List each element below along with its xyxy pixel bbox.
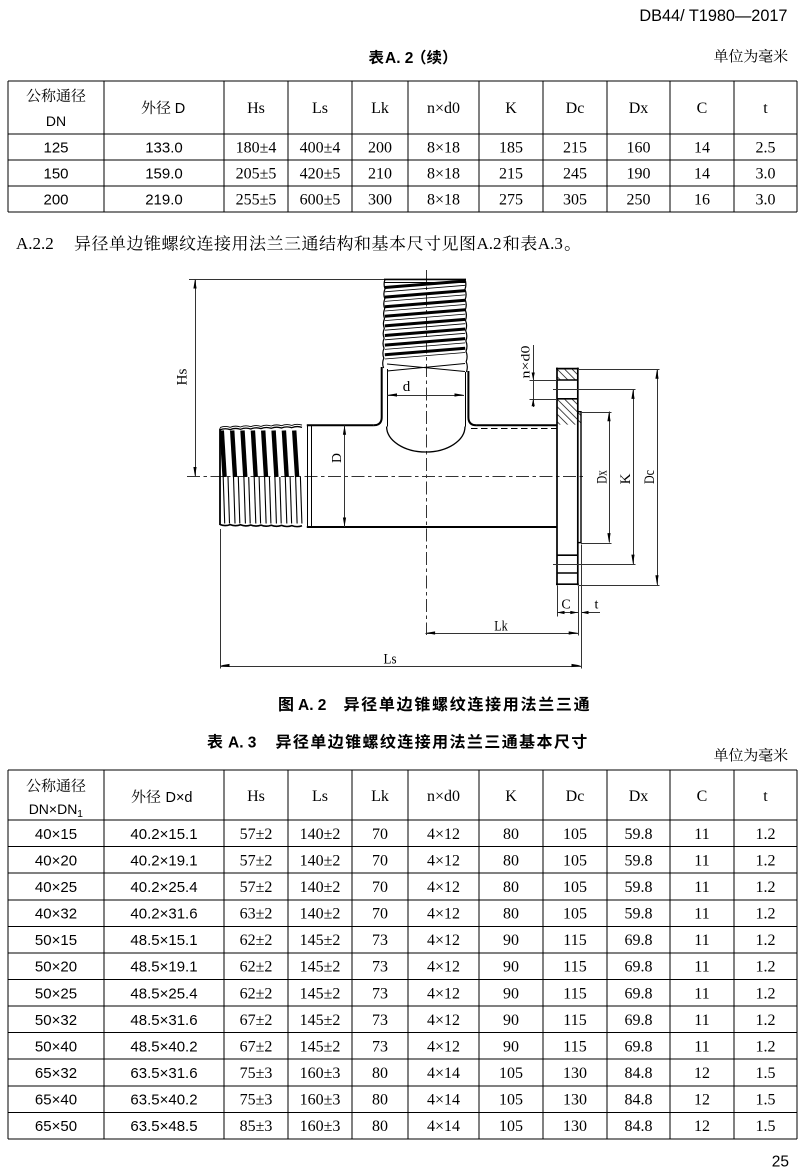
svg-text:50×40: 50×40 (35, 1038, 77, 1055)
svg-text:80: 80 (372, 1092, 388, 1109)
svg-text:65×50: 65×50 (35, 1118, 77, 1135)
svg-text:69.8: 69.8 (625, 985, 653, 1002)
svg-text:90: 90 (503, 959, 519, 976)
svg-text:11: 11 (694, 985, 709, 1002)
svg-text:DB44/ T1980—2017: DB44/ T1980—2017 (639, 7, 787, 25)
svg-text:210: 210 (368, 166, 392, 183)
svg-text:11: 11 (694, 852, 709, 869)
svg-text:130: 130 (563, 1092, 587, 1109)
svg-text:160±3: 160±3 (300, 1065, 341, 1082)
svg-text:59.8: 59.8 (625, 826, 653, 843)
svg-text:130: 130 (563, 1118, 587, 1135)
svg-text:11: 11 (694, 959, 709, 976)
svg-text:85±3: 85±3 (240, 1118, 273, 1135)
svg-text:12: 12 (694, 1118, 710, 1135)
svg-text:Dc: Dc (566, 100, 585, 117)
svg-text:14: 14 (694, 140, 710, 157)
svg-text:160±3: 160±3 (300, 1092, 341, 1109)
svg-text:140±2: 140±2 (300, 879, 341, 896)
svg-text:40.2×25.4: 40.2×25.4 (130, 879, 197, 896)
svg-text:t: t (763, 788, 768, 805)
svg-text:140±2: 140±2 (300, 826, 341, 843)
svg-text:160±3: 160±3 (300, 1118, 341, 1135)
svg-text:115: 115 (563, 1012, 586, 1029)
svg-text:A.2: A.2 (477, 234, 502, 253)
svg-text:48.5×19.1: 48.5×19.1 (130, 959, 197, 976)
svg-text:Hs: Hs (247, 788, 265, 805)
svg-text:1.2: 1.2 (756, 932, 776, 949)
svg-text:A. 2: A. 2 (385, 50, 413, 67)
svg-text:16: 16 (694, 192, 710, 209)
svg-text:Hs: Hs (247, 100, 265, 117)
svg-text:A.3: A.3 (538, 234, 563, 253)
svg-text:205±5: 205±5 (236, 166, 277, 183)
svg-text:200: 200 (368, 140, 392, 157)
svg-text:59.8: 59.8 (625, 879, 653, 896)
svg-text:75±3: 75±3 (240, 1092, 273, 1109)
svg-text:D×d: D×d (165, 790, 192, 806)
svg-text:63.5×31.6: 63.5×31.6 (130, 1065, 197, 1082)
svg-text:Dc: Dc (566, 788, 585, 805)
svg-text:11: 11 (694, 906, 709, 923)
svg-text:Dc: Dc (642, 470, 658, 484)
svg-text:40×20: 40×20 (35, 852, 77, 869)
svg-text:4×14: 4×14 (427, 1092, 460, 1109)
svg-text:115: 115 (563, 932, 586, 949)
svg-text:145±2: 145±2 (300, 1012, 341, 1029)
svg-text:420±5: 420±5 (300, 166, 341, 183)
svg-text:75±3: 75±3 (240, 1065, 273, 1082)
svg-text:DN×DN: DN×DN (29, 801, 78, 817)
svg-text:130: 130 (563, 1065, 587, 1082)
svg-text:1.2: 1.2 (756, 959, 776, 976)
svg-text:70: 70 (372, 906, 388, 923)
svg-text:1.2: 1.2 (756, 826, 776, 843)
svg-text:140±2: 140±2 (300, 906, 341, 923)
svg-text:1.2: 1.2 (756, 985, 776, 1002)
svg-text:40×15: 40×15 (35, 826, 77, 843)
svg-text:48.5×15.1: 48.5×15.1 (130, 932, 197, 949)
svg-text:40×25: 40×25 (35, 879, 77, 896)
svg-text:11: 11 (694, 932, 709, 949)
svg-text:73: 73 (372, 959, 388, 976)
svg-text:67±2: 67±2 (240, 1038, 273, 1055)
svg-text:275: 275 (499, 192, 523, 209)
svg-text:62±2: 62±2 (240, 932, 273, 949)
svg-text:70: 70 (372, 852, 388, 869)
svg-text:Lk: Lk (494, 619, 508, 635)
svg-text:105: 105 (563, 879, 587, 896)
svg-text:3.0: 3.0 (756, 166, 776, 183)
svg-text:1: 1 (77, 808, 83, 820)
svg-text:80: 80 (372, 1118, 388, 1135)
svg-text:3.0: 3.0 (756, 192, 776, 209)
svg-text:215: 215 (499, 166, 523, 183)
svg-text:140±2: 140±2 (300, 852, 341, 869)
svg-text:4×14: 4×14 (427, 1065, 460, 1082)
svg-text:63±2: 63±2 (240, 906, 273, 923)
svg-text:C: C (697, 100, 708, 117)
svg-text:1.2: 1.2 (756, 852, 776, 869)
svg-text:145±2: 145±2 (300, 1038, 341, 1055)
svg-text:65×32: 65×32 (35, 1065, 77, 1082)
svg-text:115: 115 (563, 1038, 586, 1055)
svg-text:4×14: 4×14 (427, 1118, 460, 1135)
svg-text:190: 190 (627, 166, 651, 183)
svg-text:Ls: Ls (312, 788, 328, 805)
svg-text:145±2: 145±2 (300, 932, 341, 949)
svg-text:4×12: 4×12 (427, 959, 460, 976)
svg-text:50×25: 50×25 (35, 985, 77, 1002)
svg-text:84.8: 84.8 (625, 1118, 653, 1135)
svg-text:50×20: 50×20 (35, 959, 77, 976)
svg-text:1.2: 1.2 (756, 906, 776, 923)
svg-text:11: 11 (694, 879, 709, 896)
svg-text:4×12: 4×12 (427, 932, 460, 949)
svg-text:40.2×15.1: 40.2×15.1 (130, 826, 197, 843)
svg-text:8×18: 8×18 (427, 140, 460, 157)
svg-text:1.5: 1.5 (756, 1118, 776, 1135)
svg-text:Lk: Lk (371, 100, 389, 117)
svg-text:200: 200 (43, 192, 68, 209)
svg-text:67±2: 67±2 (240, 1012, 273, 1029)
svg-text:t: t (763, 100, 768, 117)
svg-text:73: 73 (372, 1038, 388, 1055)
svg-text:Lk: Lk (371, 788, 389, 805)
svg-text:73: 73 (372, 985, 388, 1002)
svg-text:159.0: 159.0 (145, 166, 183, 183)
svg-text:69.8: 69.8 (625, 1038, 653, 1055)
svg-text:D: D (329, 453, 344, 463)
svg-text:1.2: 1.2 (756, 1012, 776, 1029)
svg-text:105: 105 (499, 1118, 523, 1135)
svg-text:n×d0: n×d0 (518, 346, 533, 379)
svg-text:73: 73 (372, 932, 388, 949)
svg-text:48.5×31.6: 48.5×31.6 (130, 1012, 197, 1029)
svg-text:73: 73 (372, 1012, 388, 1029)
svg-text:C: C (697, 788, 708, 805)
svg-text:69.8: 69.8 (625, 932, 653, 949)
svg-text:180±4: 180±4 (236, 140, 277, 157)
svg-text:80: 80 (372, 1065, 388, 1082)
svg-text:25: 25 (772, 1153, 789, 1170)
svg-text:11: 11 (694, 1012, 709, 1029)
svg-text:90: 90 (503, 985, 519, 1002)
svg-text:t: t (595, 598, 599, 613)
svg-text:90: 90 (503, 932, 519, 949)
svg-text:4×12: 4×12 (427, 879, 460, 896)
svg-text:48.5×25.4: 48.5×25.4 (130, 985, 197, 1002)
svg-text:133.0: 133.0 (145, 140, 183, 157)
svg-text:84.8: 84.8 (625, 1065, 653, 1082)
svg-text:215: 215 (563, 140, 587, 157)
svg-text:4×12: 4×12 (427, 852, 460, 869)
svg-text:105: 105 (563, 852, 587, 869)
svg-text:59.8: 59.8 (625, 906, 653, 923)
svg-text:A. 3: A. 3 (228, 735, 257, 752)
svg-text:115: 115 (563, 985, 586, 1002)
svg-text:n×d0: n×d0 (427, 100, 460, 117)
svg-text:63.5×48.5: 63.5×48.5 (130, 1118, 197, 1135)
svg-text:14: 14 (694, 166, 710, 183)
svg-text:69.8: 69.8 (625, 1012, 653, 1029)
svg-text:305: 305 (563, 192, 587, 209)
svg-text:12: 12 (694, 1092, 710, 1109)
svg-text:50×15: 50×15 (35, 932, 77, 949)
svg-text:70: 70 (372, 879, 388, 896)
svg-text:255±5: 255±5 (236, 192, 277, 209)
svg-text:Ls: Ls (384, 652, 397, 668)
svg-text:600±5: 600±5 (300, 192, 341, 209)
svg-text:DN: DN (46, 113, 66, 129)
svg-text:250: 250 (627, 192, 651, 209)
svg-text:50×32: 50×32 (35, 1012, 77, 1029)
svg-text:4×12: 4×12 (427, 1012, 460, 1029)
svg-text:65×40: 65×40 (35, 1092, 77, 1109)
svg-text:Dx: Dx (595, 470, 611, 484)
svg-text:150: 150 (43, 166, 68, 183)
svg-text:57±2: 57±2 (240, 826, 273, 843)
svg-text:115: 115 (563, 959, 586, 976)
svg-text:59.8: 59.8 (625, 852, 653, 869)
svg-text:K: K (505, 100, 517, 117)
svg-text:219.0: 219.0 (145, 192, 183, 209)
svg-text:Ls: Ls (312, 100, 328, 117)
svg-text:40.2×19.1: 40.2×19.1 (130, 852, 197, 869)
svg-text:8×18: 8×18 (427, 166, 460, 183)
svg-text:40×32: 40×32 (35, 906, 77, 923)
svg-text:8×18: 8×18 (427, 192, 460, 209)
svg-text:300: 300 (368, 192, 392, 209)
svg-text:160: 160 (627, 140, 651, 157)
svg-text:2.5: 2.5 (756, 140, 776, 157)
svg-text:4×12: 4×12 (427, 906, 460, 923)
svg-text:1.5: 1.5 (756, 1092, 776, 1109)
svg-text:d: d (403, 379, 411, 395)
svg-text:K: K (505, 788, 517, 805)
svg-text:48.5×40.2: 48.5×40.2 (130, 1038, 197, 1055)
svg-text:90: 90 (503, 1038, 519, 1055)
svg-text:Hs: Hs (175, 368, 191, 385)
svg-text:n×d0: n×d0 (427, 788, 460, 805)
svg-text:A.2.2: A.2.2 (16, 234, 54, 253)
svg-text:105: 105 (499, 1065, 523, 1082)
svg-text:40.2×31.6: 40.2×31.6 (130, 906, 197, 923)
svg-text:80: 80 (503, 879, 519, 896)
svg-text:62±2: 62±2 (240, 985, 273, 1002)
svg-text:400±4: 400±4 (300, 140, 341, 157)
svg-text:145±2: 145±2 (300, 985, 341, 1002)
svg-text:105: 105 (563, 906, 587, 923)
svg-text:80: 80 (503, 906, 519, 923)
svg-text:185: 185 (499, 140, 523, 157)
svg-text:69.8: 69.8 (625, 959, 653, 976)
svg-text:80: 80 (503, 826, 519, 843)
svg-text:Dx: Dx (629, 100, 649, 117)
svg-text:11: 11 (694, 1038, 709, 1055)
svg-text:1.2: 1.2 (756, 1038, 776, 1055)
svg-text:C: C (561, 598, 570, 613)
svg-text:105: 105 (499, 1092, 523, 1109)
svg-text:4×12: 4×12 (427, 1038, 460, 1055)
svg-text:57±2: 57±2 (240, 852, 273, 869)
svg-text:11: 11 (694, 826, 709, 843)
svg-text:12: 12 (694, 1065, 710, 1082)
svg-text:57±2: 57±2 (240, 879, 273, 896)
svg-text:K: K (618, 473, 634, 484)
svg-text:125: 125 (43, 140, 68, 157)
svg-text:62±2: 62±2 (240, 959, 273, 976)
svg-text:D: D (175, 101, 185, 117)
svg-text:A. 2: A. 2 (298, 697, 326, 714)
svg-text:84.8: 84.8 (625, 1092, 653, 1109)
svg-text:90: 90 (503, 1012, 519, 1029)
svg-text:Dx: Dx (629, 788, 649, 805)
svg-text:63.5×40.2: 63.5×40.2 (130, 1092, 197, 1109)
svg-text:4×12: 4×12 (427, 826, 460, 843)
svg-text:4×12: 4×12 (427, 985, 460, 1002)
svg-text:70: 70 (372, 826, 388, 843)
svg-text:1.5: 1.5 (756, 1065, 776, 1082)
svg-text:105: 105 (563, 826, 587, 843)
svg-text:145±2: 145±2 (300, 959, 341, 976)
svg-text:80: 80 (503, 852, 519, 869)
svg-text:1.2: 1.2 (756, 879, 776, 896)
svg-text:245: 245 (563, 166, 587, 183)
